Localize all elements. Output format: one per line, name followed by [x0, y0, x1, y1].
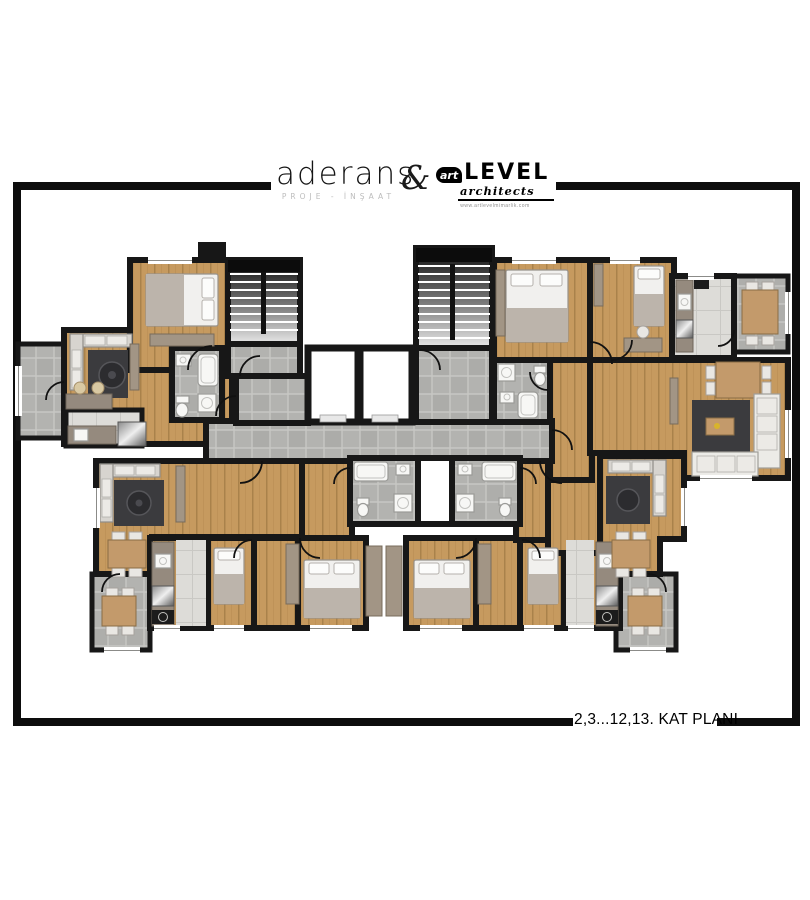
wardrobe-e2 — [478, 544, 491, 604]
frame-top-left — [13, 182, 271, 190]
stair-landing-b — [416, 346, 492, 422]
plan-title: 2,3...12,13. KAT PLANI — [574, 711, 714, 729]
shaft — [418, 458, 452, 524]
staircase-left — [228, 260, 300, 344]
stool-2 — [92, 382, 104, 394]
tv-console-a — [130, 344, 139, 390]
logo-aderans: aderans PROJE - İNŞAAT — [276, 158, 401, 201]
kitchen-b-counter — [152, 542, 174, 626]
breakfast-bar-a — [66, 394, 112, 409]
floor-plan — [10, 238, 800, 668]
wardrobe-b2 — [286, 544, 299, 604]
kitchen-e-floor — [566, 540, 594, 626]
stove-a — [118, 422, 146, 446]
frame-bottom-left — [13, 718, 573, 726]
bed-single-e1 — [528, 548, 558, 604]
ampersand: & — [401, 158, 430, 197]
wardrobe-party-1 — [366, 546, 382, 616]
tv-console-d — [670, 378, 678, 424]
frame-top-right — [556, 182, 800, 190]
coffee-table-e — [617, 489, 639, 511]
logo-aderans-name: aderans — [276, 158, 401, 190]
coffee-table-a-decor — [108, 371, 116, 379]
wardrobe-d2 — [594, 264, 603, 306]
room-hall-d — [550, 350, 592, 480]
stool-1 — [74, 382, 86, 394]
staircase-center — [416, 248, 492, 348]
stair-landing-a — [228, 342, 300, 376]
desk-chair-d2 — [637, 326, 649, 338]
bed-double-b2 — [304, 560, 360, 618]
page: aderans PROJE - İNŞAAT & art LEVEL archi… — [0, 0, 810, 900]
tv-console-b — [176, 466, 185, 522]
bed-single-d2 — [634, 266, 664, 326]
elevator-2 — [360, 348, 412, 422]
logo-art-level: art LEVEL architects www.artlevelmimarli… — [436, 163, 554, 209]
sink-a — [74, 429, 88, 441]
logo-aderans-subtitle: PROJE - İNŞAAT — [276, 192, 401, 201]
bed-single-b1 — [214, 548, 244, 604]
vestibule — [236, 376, 308, 423]
wardrobe-d1 — [496, 270, 505, 336]
shaft-stub — [198, 242, 226, 262]
logo-url: www.artlevelmimarlik.com — [436, 203, 554, 209]
balcony-left — [18, 344, 64, 438]
wardrobe-party-2 — [386, 546, 402, 616]
bed-double-a — [146, 274, 218, 326]
bed-double-e2 — [414, 560, 470, 618]
coffee-table-b-decor — [136, 500, 143, 507]
elevator-1 — [308, 348, 358, 422]
coffee-table-d — [706, 418, 734, 435]
logo-level-name: LEVEL — [464, 163, 549, 183]
logo-art-badge: art — [436, 167, 462, 183]
logo-architects: architects — [458, 184, 554, 201]
kitchen-b-floor — [176, 540, 206, 626]
room-hall-b — [302, 458, 352, 540]
wardrobe-a — [150, 334, 214, 346]
bed-double-d1 — [506, 270, 568, 342]
